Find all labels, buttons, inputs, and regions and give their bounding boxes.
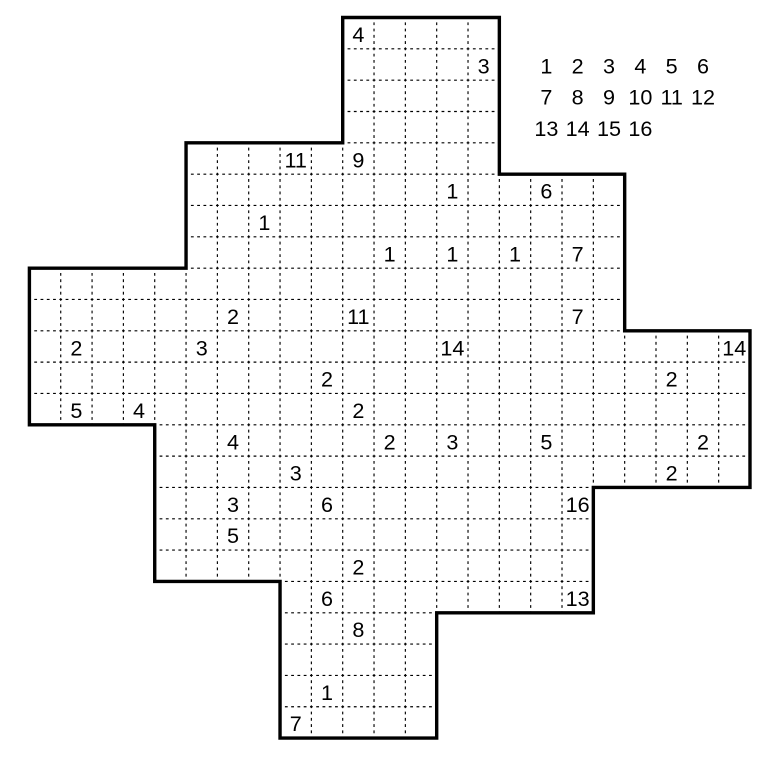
svg-text:6: 6 <box>697 53 709 78</box>
svg-text:4: 4 <box>634 53 646 78</box>
svg-text:2: 2 <box>572 53 584 78</box>
svg-text:3: 3 <box>196 335 208 360</box>
svg-text:4: 4 <box>352 22 364 47</box>
svg-text:7: 7 <box>572 304 584 329</box>
svg-text:16: 16 <box>566 492 590 517</box>
svg-text:1: 1 <box>384 241 396 266</box>
svg-text:12: 12 <box>691 85 715 110</box>
svg-text:1: 1 <box>509 241 521 266</box>
svg-text:5: 5 <box>540 429 552 454</box>
svg-text:1: 1 <box>446 179 458 204</box>
svg-text:2: 2 <box>352 398 364 423</box>
svg-text:2: 2 <box>321 367 333 392</box>
svg-text:11: 11 <box>284 147 306 172</box>
svg-text:3: 3 <box>603 53 615 78</box>
svg-text:3: 3 <box>446 429 458 454</box>
svg-text:4: 4 <box>227 429 239 454</box>
svg-text:2: 2 <box>352 555 364 580</box>
svg-text:3: 3 <box>227 492 239 517</box>
svg-text:2: 2 <box>697 429 709 454</box>
svg-text:9: 9 <box>603 85 615 110</box>
svg-text:16: 16 <box>628 116 652 141</box>
svg-text:7: 7 <box>290 711 302 736</box>
svg-text:14: 14 <box>722 335 746 360</box>
svg-text:7: 7 <box>572 241 584 266</box>
svg-text:2: 2 <box>70 335 82 360</box>
svg-text:11: 11 <box>347 304 369 329</box>
svg-text:5: 5 <box>70 398 82 423</box>
svg-text:13: 13 <box>566 586 590 611</box>
svg-text:4: 4 <box>133 398 145 423</box>
svg-text:14: 14 <box>440 335 464 360</box>
svg-text:3: 3 <box>478 53 490 78</box>
svg-text:15: 15 <box>597 116 621 141</box>
svg-text:1: 1 <box>258 210 270 235</box>
svg-text:8: 8 <box>352 617 364 642</box>
svg-text:3: 3 <box>290 461 302 486</box>
svg-text:1: 1 <box>321 680 333 705</box>
svg-text:1: 1 <box>540 53 552 78</box>
svg-text:6: 6 <box>321 492 333 517</box>
svg-text:10: 10 <box>628 85 652 110</box>
svg-text:1: 1 <box>446 241 458 266</box>
svg-text:2: 2 <box>666 461 678 486</box>
svg-text:9: 9 <box>352 147 364 172</box>
svg-text:2: 2 <box>666 367 678 392</box>
svg-text:6: 6 <box>321 586 333 611</box>
svg-text:13: 13 <box>534 116 558 141</box>
svg-text:5: 5 <box>666 53 678 78</box>
svg-text:7: 7 <box>540 85 552 110</box>
svg-text:8: 8 <box>572 85 584 110</box>
svg-text:2: 2 <box>384 429 396 454</box>
svg-text:6: 6 <box>540 179 552 204</box>
svg-text:11: 11 <box>660 85 682 110</box>
svg-text:2: 2 <box>227 304 239 329</box>
svg-text:5: 5 <box>227 523 239 548</box>
svg-text:14: 14 <box>566 116 590 141</box>
